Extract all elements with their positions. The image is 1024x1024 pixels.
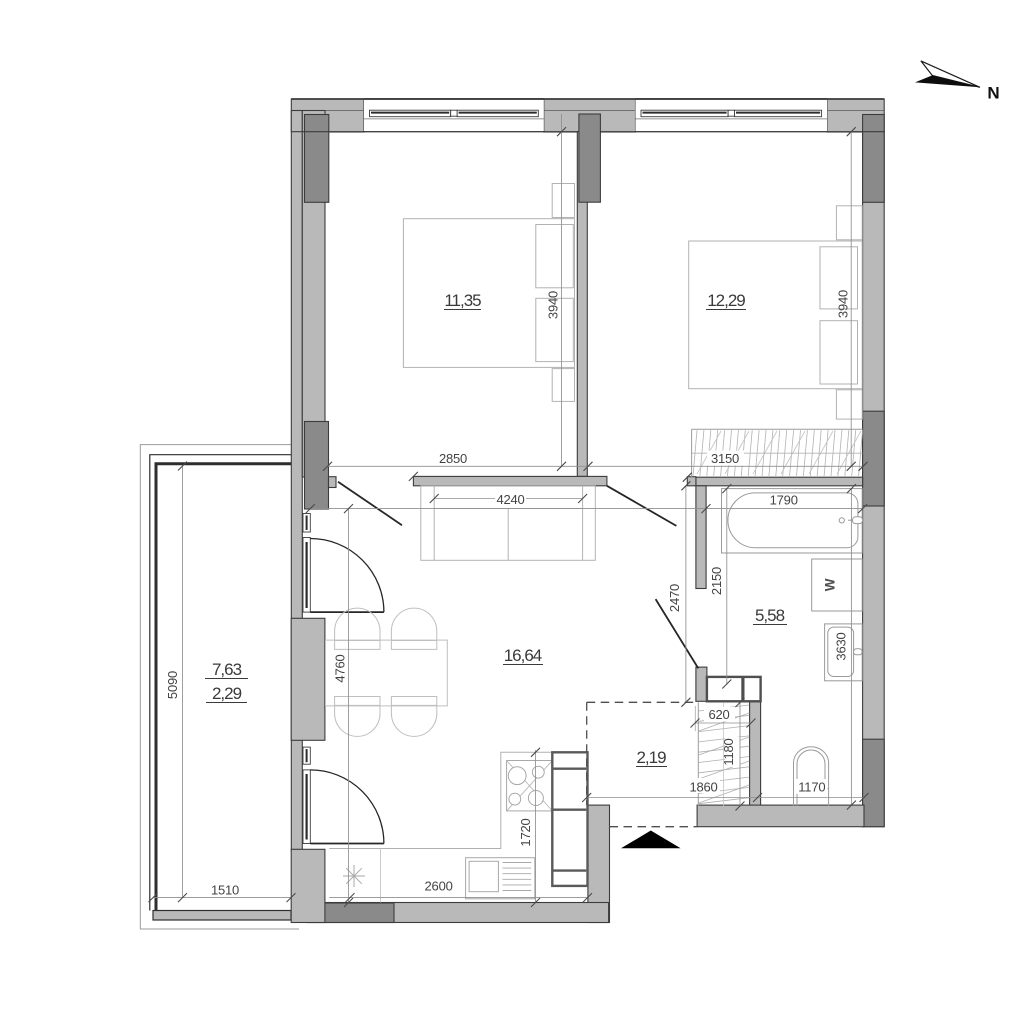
svg-text:16,64: 16,64: [504, 646, 542, 665]
svg-text:1180: 1180: [721, 738, 736, 765]
svg-text:3630: 3630: [834, 632, 849, 660]
svg-text:620: 620: [708, 707, 729, 722]
svg-text:4240: 4240: [496, 492, 524, 507]
svg-text:2150: 2150: [709, 567, 724, 595]
svg-text:1720: 1720: [518, 818, 533, 846]
svg-text:5090: 5090: [165, 671, 180, 699]
svg-text:N: N: [987, 84, 999, 103]
svg-text:2600: 2600: [425, 879, 453, 894]
svg-text:1170: 1170: [798, 780, 825, 795]
svg-text:11,35: 11,35: [444, 291, 481, 310]
svg-text:7,63: 7,63: [212, 660, 242, 679]
svg-text:3940: 3940: [546, 291, 561, 319]
svg-text:2470: 2470: [667, 584, 682, 612]
svg-text:5,58: 5,58: [755, 606, 785, 625]
svg-text:3150: 3150: [711, 451, 739, 466]
svg-text:1790: 1790: [770, 493, 798, 508]
svg-text:2850: 2850: [439, 451, 467, 466]
svg-text:4760: 4760: [332, 654, 347, 682]
svg-text:2,19: 2,19: [636, 748, 666, 767]
svg-text:3940: 3940: [835, 290, 850, 318]
svg-text:W: W: [823, 578, 838, 591]
svg-text:12,29: 12,29: [707, 291, 745, 310]
svg-text:1860: 1860: [689, 780, 717, 795]
svg-text:1510: 1510: [211, 883, 239, 898]
svg-text:2,29: 2,29: [212, 684, 242, 703]
